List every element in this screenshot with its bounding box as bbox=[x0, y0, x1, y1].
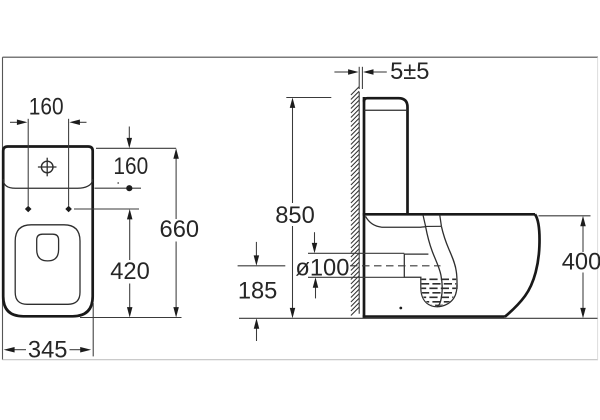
svg-text:345: 345 bbox=[28, 337, 68, 363]
svg-text:ø100: ø100 bbox=[295, 255, 349, 281]
svg-text:660: 660 bbox=[160, 217, 200, 243]
svg-text:185: 185 bbox=[238, 279, 278, 305]
svg-text:400: 400 bbox=[562, 250, 600, 276]
svg-text:5±5: 5±5 bbox=[390, 59, 429, 85]
svg-text:850: 850 bbox=[275, 203, 315, 229]
svg-text:420: 420 bbox=[110, 259, 150, 285]
svg-text:160: 160 bbox=[29, 94, 64, 120]
svg-text:160: 160 bbox=[113, 154, 148, 180]
